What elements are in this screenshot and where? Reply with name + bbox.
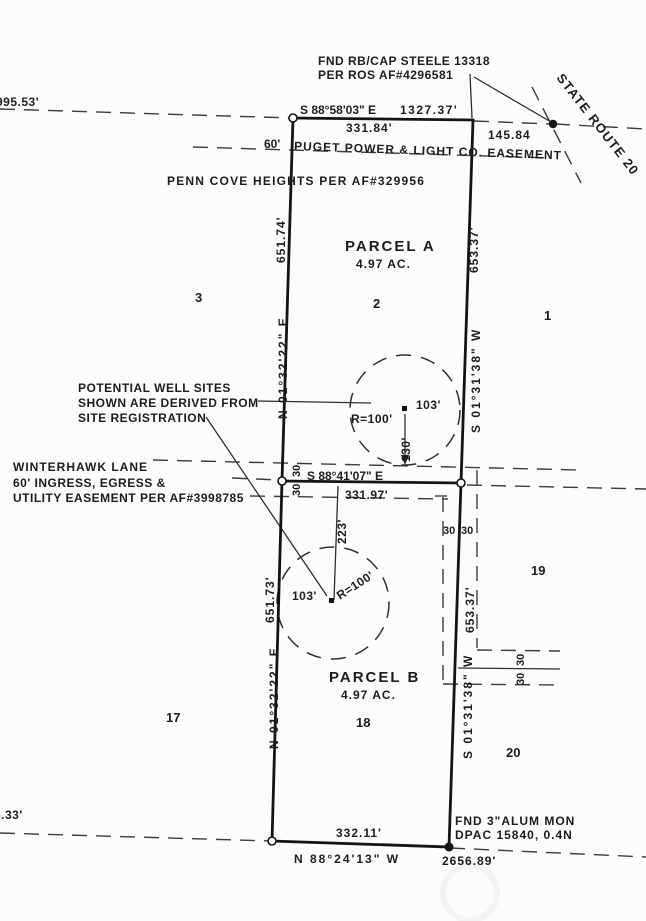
well-note-leader-a (258, 401, 371, 403)
subdivision-label: PENN COVE HEIGHTS PER AF#329956 (167, 174, 425, 188)
well-center-b (329, 598, 334, 603)
lot-19: 19 (531, 563, 545, 578)
lot-18: 18 (356, 715, 370, 730)
found-monument-bottom-line2: DPAC 15840, 0.4N (455, 828, 573, 842)
lane-name: WINTERHAWK LANE (13, 460, 148, 474)
corner-nw (289, 114, 297, 122)
east-easement-half-width-north: 30 (515, 654, 527, 666)
well-note-line2: SHOWN ARE DERIVED FROM (78, 396, 259, 410)
section-line-west (0, 109, 292, 118)
lane-centerline-west-extension (232, 478, 280, 480)
found-monument-se (445, 843, 454, 852)
south-section-bearing: N 88°24'13" W (294, 852, 400, 866)
well-note-line1: POTENTIAL WELL SITES (78, 381, 231, 395)
boundary-north (293, 118, 473, 120)
lane-centerline-east-extension (467, 485, 646, 489)
monument-label-tick (470, 74, 472, 118)
parcel-b-west-length: 651.73' (263, 576, 277, 623)
survey-plat-scan: FND RB/CAP STEELE 13318 PER ROS AF#42965… (0, 0, 646, 921)
parcel-a-north-width: 331.84' (346, 121, 393, 135)
parcel-b-east-bearing: S 01°31'38" W (461, 654, 475, 759)
lane-desc2: UTILITY EASEMENT PER AF#3998785 (13, 491, 244, 505)
parcel-a-west-bearing: N 01°32'22" E (276, 316, 290, 419)
found-monument-top-line2: PER ROS AF#4296581 (318, 68, 453, 82)
well-b-offset-label: 103' (292, 589, 317, 603)
parcel-a-name: PARCEL A (345, 238, 436, 255)
well-note-leader-b (206, 417, 327, 596)
puget-easement-label: PUGET POWER & LIGHT CO. EASEMENT (294, 139, 562, 162)
boundary-south (272, 841, 449, 847)
lane-distance: 331.97' (345, 488, 388, 502)
lane-half-width-south: 30 (291, 484, 303, 496)
east-easement-half-width-south: 30 (515, 673, 527, 685)
corner-mid-east (457, 479, 465, 487)
parcel-a-west-length: 651.74' (274, 216, 288, 263)
southwest-section-distance: 6.33' (0, 808, 23, 822)
found-monument-top-line1: FND RB/CAP STEELE 13318 (318, 54, 490, 68)
well-b-distance-label: 223' (335, 519, 349, 544)
east-easement-north-edge (477, 650, 560, 651)
east-corridor-half-width-east: 30 (461, 525, 473, 537)
monument-leader (474, 77, 551, 122)
well-center-a (402, 406, 407, 411)
corner-sw (268, 837, 276, 845)
lot-3: 3 (195, 290, 202, 305)
east-corridor-half-width-west: 30 (443, 525, 455, 537)
found-monument-bottom-line1: FND 3"ALUM MON (455, 814, 575, 828)
lane-desc1: 60' INGRESS, EGRESS & (13, 476, 166, 490)
well-b-radius-label: R=100' (334, 568, 376, 602)
lane-bearing: S 88°41'07" E (307, 469, 383, 483)
labels: FND RB/CAP STEELE 13318 PER ROS AF#42965… (0, 54, 642, 868)
lane-half-width-north: 30 (291, 465, 303, 477)
puget-easement-width: 60' (264, 137, 280, 151)
lot-17: 17 (166, 710, 180, 725)
parcel-b-south-width: 332.11' (336, 826, 382, 840)
north-section-distance: 1327.37' (400, 103, 458, 117)
corner-mid-west (278, 477, 286, 485)
section-line-corner-to-monument (474, 121, 551, 124)
parcel-b-area: 4.97 AC. (341, 688, 396, 702)
parcel-a-east-bearing: S 01°31'38" W (469, 328, 483, 433)
north-section-bearing: S 88°58'03" E (300, 103, 376, 117)
corner-markers (268, 114, 557, 920)
well-a-offset-label: 103' (416, 398, 441, 412)
well-a-radius-label: R=100' (351, 412, 393, 426)
lot-2: 2 (373, 296, 380, 311)
parcel-b-east-length: 653.37' (463, 586, 477, 633)
corner-to-monument-distance: 145.84 (488, 128, 531, 142)
parcel-b-west-bearing: N 01°32'22" E (267, 646, 281, 749)
section-line-bottom-west (0, 833, 271, 841)
parcel-a-east-length: 653.37' (467, 226, 481, 273)
scan-artifact (443, 866, 497, 920)
found-monument-ne (549, 120, 557, 128)
well-a-distance-label: 130' (399, 437, 413, 462)
lot-1: 1 (544, 308, 551, 323)
well-note-line3: SITE REGISTRATION (78, 411, 206, 425)
plat-drawing: FND RB/CAP STEELE 13318 PER ROS AF#42965… (0, 0, 646, 921)
parcel-b-name: PARCEL B (329, 669, 420, 686)
parcel-a-area: 4.97 AC. (356, 257, 411, 271)
west-section-distance: 995.53' (0, 95, 39, 109)
south-section-distance: 2656.89' (442, 854, 496, 868)
leader-lines (206, 74, 560, 669)
lot-20: 20 (506, 745, 520, 760)
